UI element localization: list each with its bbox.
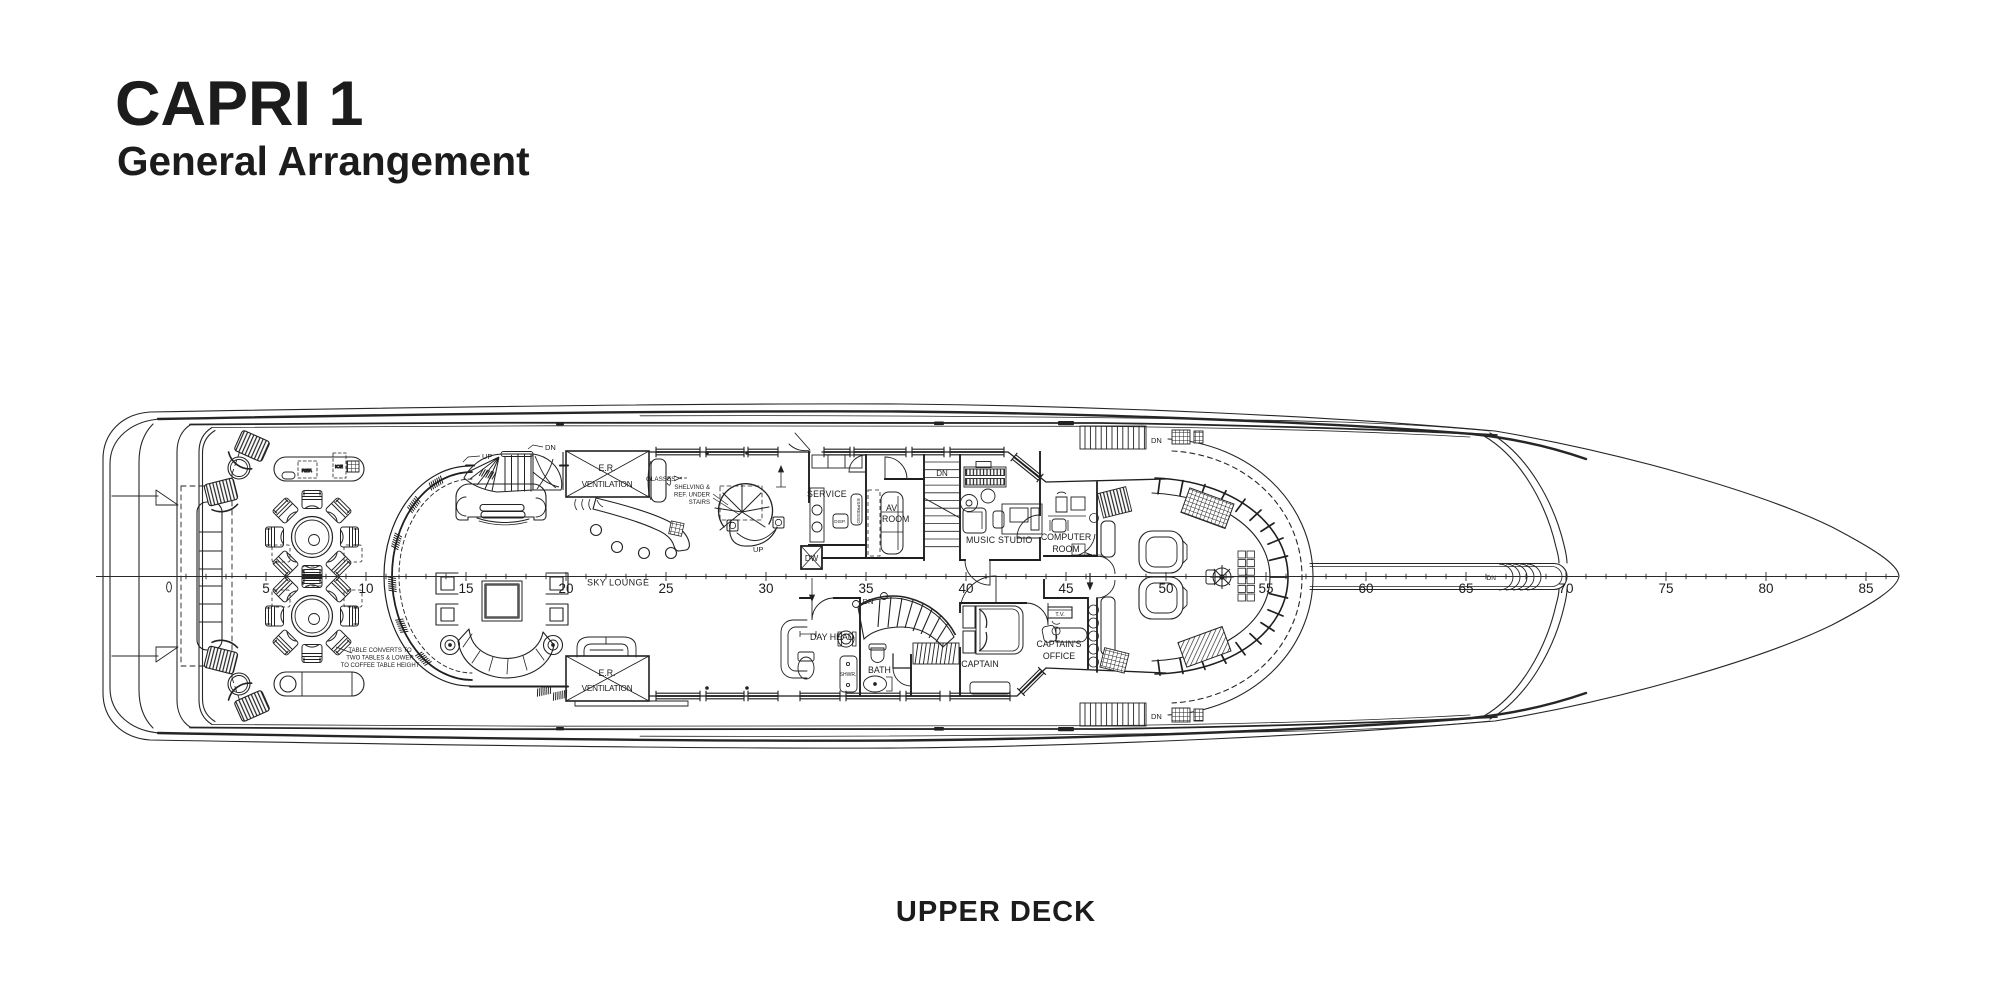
svg-text:40: 40 <box>958 581 973 596</box>
svg-text:CAPRI 1: CAPRI 1 <box>115 69 364 139</box>
svg-text:E.R.: E.R. <box>598 668 615 678</box>
svg-text:BOOKS: BOOKS <box>1086 553 1102 558</box>
svg-text:60: 60 <box>1358 581 1373 596</box>
svg-text:DW: DW <box>805 554 819 563</box>
svg-text:E.R.: E.R. <box>598 463 615 473</box>
svg-text:CAPTAIN: CAPTAIN <box>961 659 998 669</box>
svg-text:SERVICE: SERVICE <box>807 489 847 499</box>
svg-text:10: 10 <box>358 581 373 596</box>
svg-text:DN: DN <box>1151 712 1162 721</box>
svg-text:General Arrangement: General Arrangement <box>117 138 530 184</box>
svg-text:DN: DN <box>936 469 948 478</box>
svg-text:VENTILATION: VENTILATION <box>582 480 633 489</box>
svg-text:UPPER DECK: UPPER DECK <box>896 896 1096 928</box>
svg-text:65: 65 <box>1458 581 1473 596</box>
svg-text:TWO TABLES & LOWER: TWO TABLES & LOWER <box>346 656 414 662</box>
svg-text:DN: DN <box>1151 436 1162 445</box>
svg-text:15: 15 <box>458 581 473 596</box>
svg-text:BATH: BATH <box>868 665 891 675</box>
svg-text:35: 35 <box>858 581 873 596</box>
svg-text:SHWR.: SHWR. <box>840 672 857 678</box>
svg-text:STAIRS: STAIRS <box>689 500 710 506</box>
svg-text:DAY HEAD: DAY HEAD <box>810 632 854 642</box>
svg-text:45: 45 <box>1058 581 1073 596</box>
svg-text:30: 30 <box>758 581 773 596</box>
svg-text:SKY LOUNGE: SKY LOUNGE <box>587 578 649 588</box>
svg-text:85: 85 <box>1858 581 1873 596</box>
svg-text:70: 70 <box>1558 581 1573 596</box>
svg-text:T.V.: T.V. <box>1055 612 1065 618</box>
svg-text:DN: DN <box>863 597 874 606</box>
svg-text:VENTILATION: VENTILATION <box>582 684 633 693</box>
svg-text:SHELVING &: SHELVING & <box>674 485 710 491</box>
svg-text:TO COFFEE TABLE HEIGHT: TO COFFEE TABLE HEIGHT <box>341 663 420 669</box>
svg-text:AV: AV <box>886 503 897 513</box>
svg-text:ROOM: ROOM <box>1052 544 1079 554</box>
svg-text:UP: UP <box>753 545 763 554</box>
svg-text:DN: DN <box>545 443 556 452</box>
svg-text:75: 75 <box>1658 581 1673 596</box>
svg-text:ICE: ICE <box>335 464 343 470</box>
svg-text:50: 50 <box>1158 581 1173 596</box>
svg-text:MUSIC STUDIO: MUSIC STUDIO <box>966 535 1032 545</box>
svg-text:5: 5 <box>262 581 270 596</box>
svg-text:ROOM: ROOM <box>882 514 909 524</box>
svg-text:DISP.: DISP. <box>834 519 845 524</box>
svg-text:OFFICE: OFFICE <box>1043 651 1075 661</box>
svg-text:55: 55 <box>1258 581 1273 596</box>
svg-text:20: 20 <box>558 581 573 596</box>
svg-text:REF. UNDER: REF. UNDER <box>674 493 711 499</box>
svg-text:COMPUTER: COMPUTER <box>1041 532 1091 542</box>
svg-text:25: 25 <box>658 581 673 596</box>
svg-text:UP: UP <box>482 452 492 461</box>
svg-text:GLASSES: GLASSES <box>646 476 675 483</box>
svg-text:REF.: REF. <box>302 468 312 474</box>
svg-text:ESPRESSO: ESPRESSO <box>856 498 861 524</box>
svg-text:TABLE CONVERTS TO: TABLE CONVERTS TO <box>348 648 412 654</box>
svg-text:80: 80 <box>1758 581 1773 596</box>
svg-text:CAPTAIN'S: CAPTAIN'S <box>1036 639 1081 649</box>
